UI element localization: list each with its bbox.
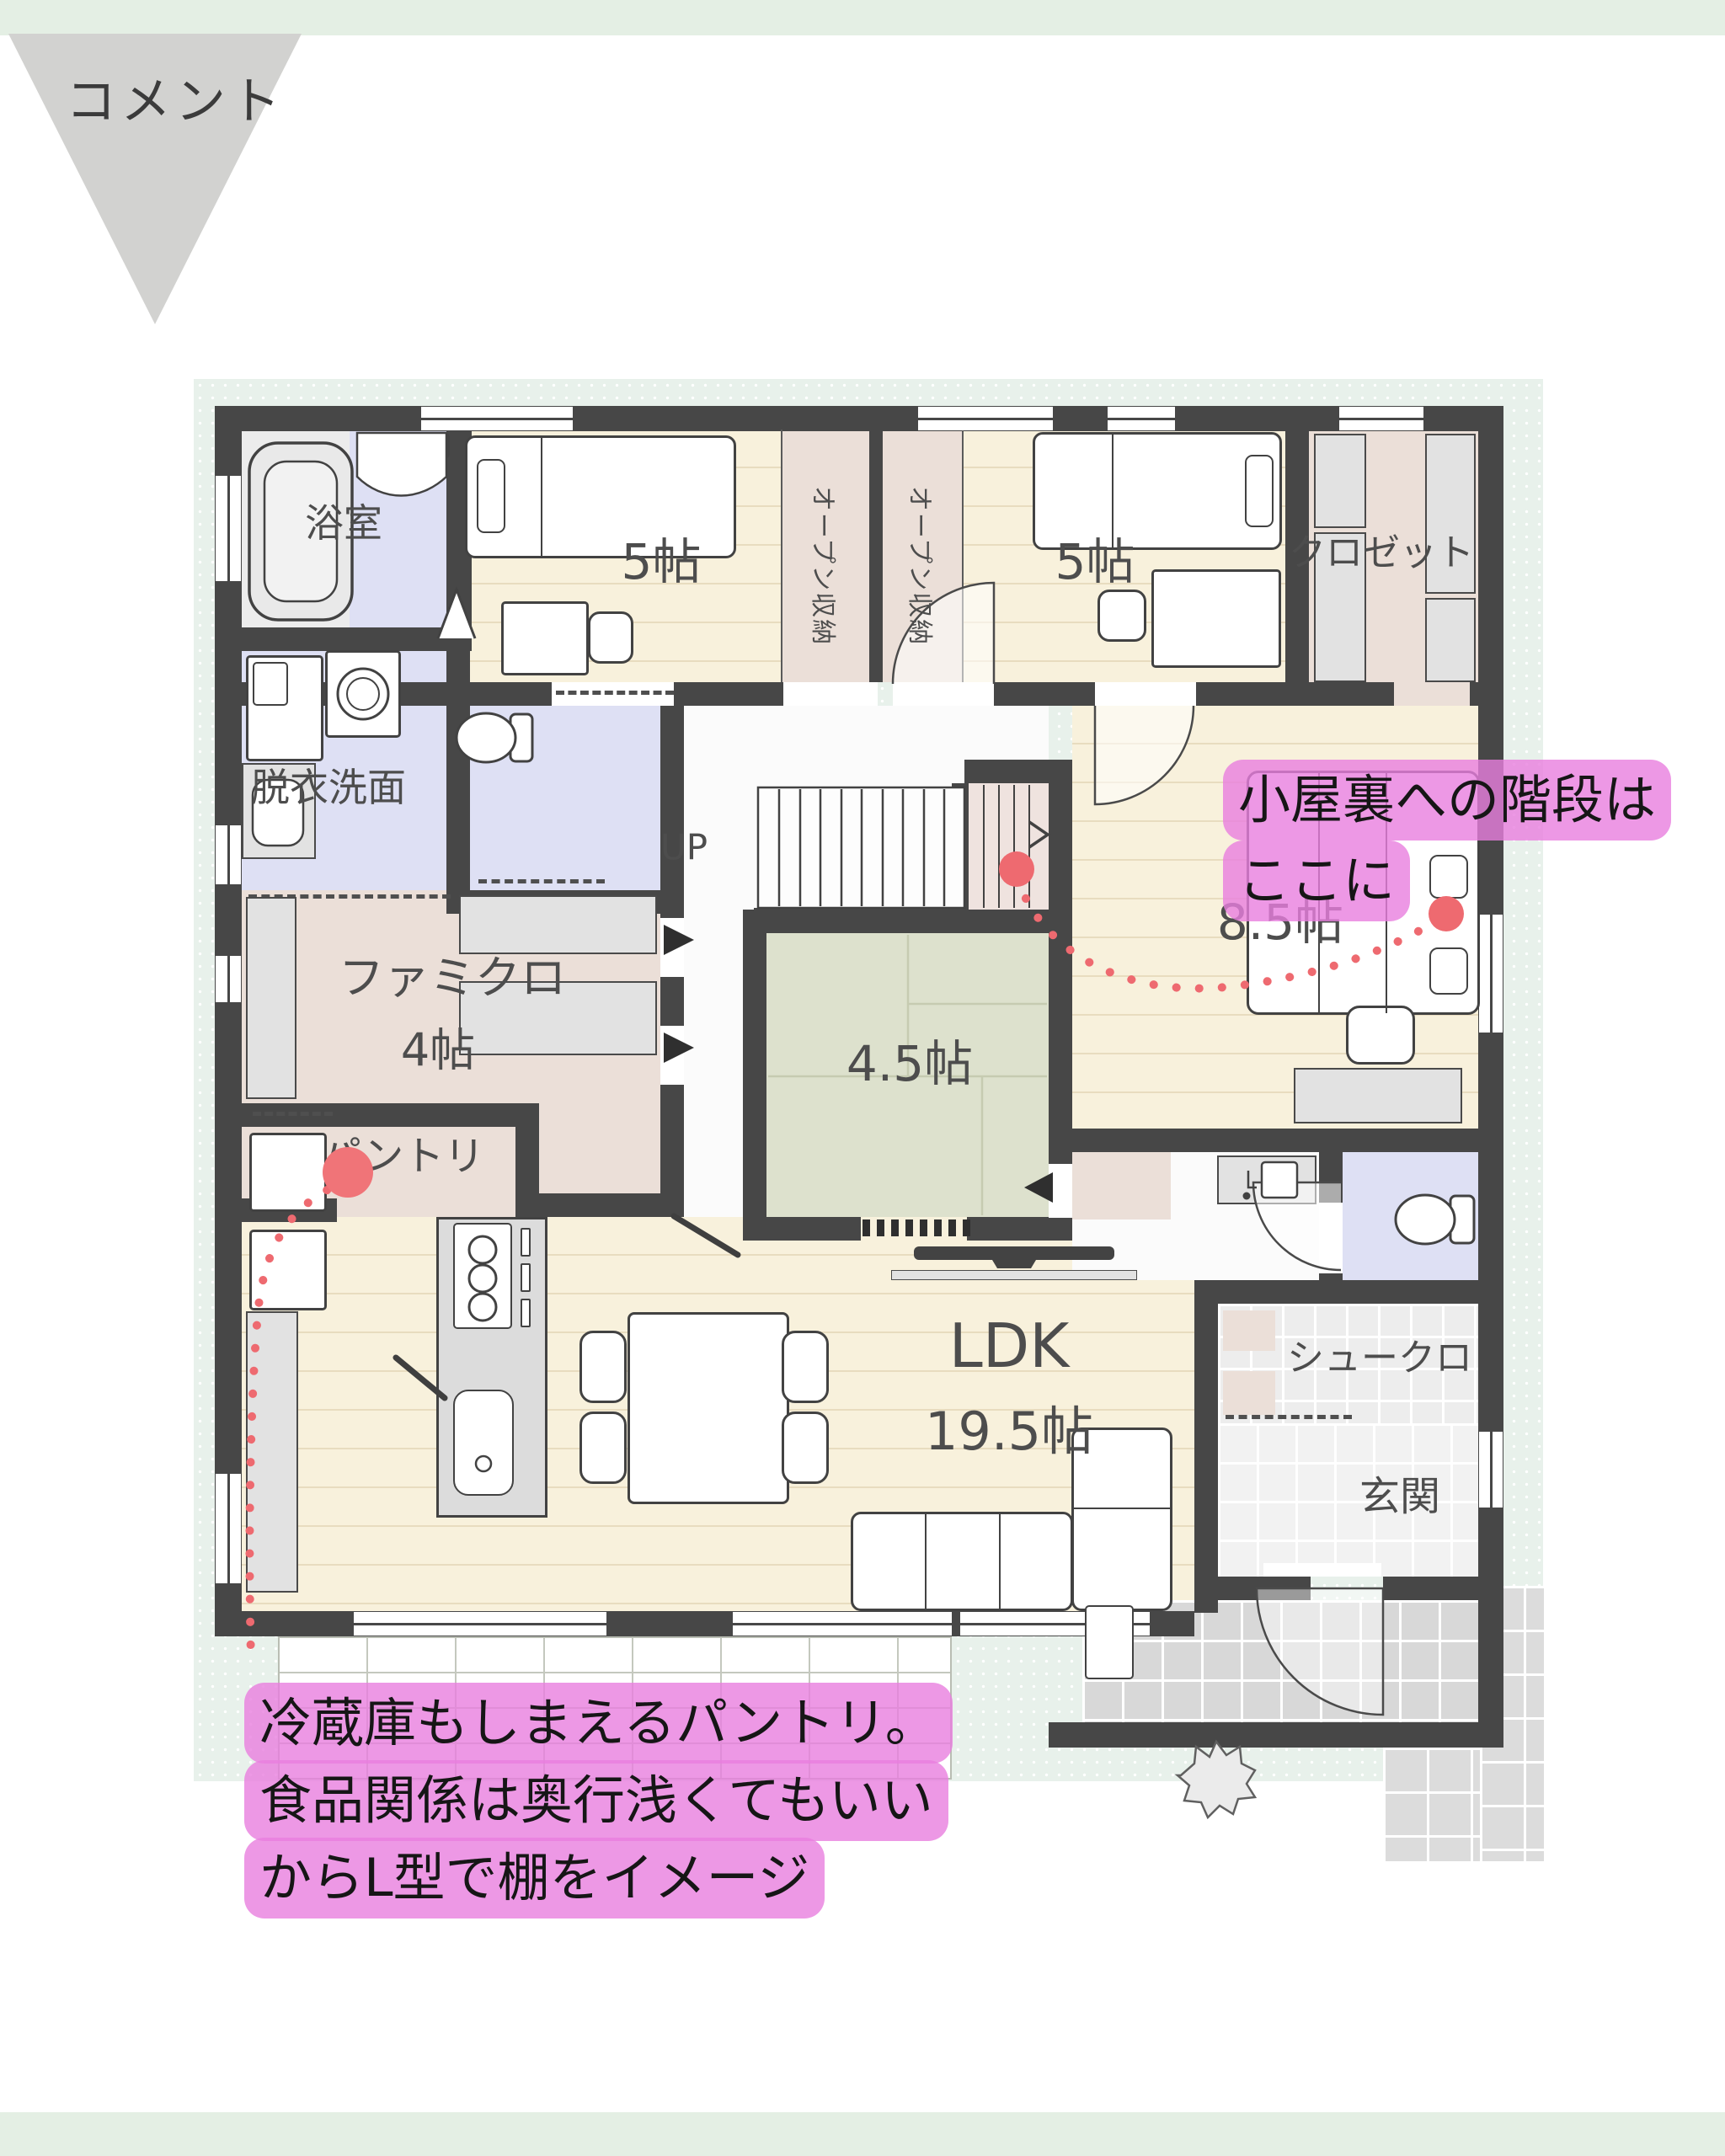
bath-shelf-icon bbox=[406, 433, 450, 458]
closet-shelf-icon bbox=[1425, 598, 1476, 682]
threshold-dashed bbox=[253, 1112, 333, 1116]
annotation-attic-line2: ここに bbox=[1223, 841, 1410, 921]
window bbox=[421, 407, 573, 430]
room-size-ldk: 19.5帖 bbox=[925, 1389, 1093, 1465]
annotation-pantry-line1: 冷蔵庫もしまえるパントリ。 bbox=[244, 1683, 953, 1764]
sofa-icon bbox=[851, 1512, 1073, 1611]
window bbox=[733, 1612, 952, 1636]
laundry-shelf-box-icon bbox=[253, 662, 288, 706]
chair-icon bbox=[579, 1331, 627, 1403]
storage-boundary-line bbox=[962, 430, 964, 682]
wall bbox=[1470, 682, 1480, 706]
planter-icon bbox=[1085, 1605, 1134, 1679]
pillow-icon bbox=[477, 459, 505, 533]
sofa-cushion-line bbox=[999, 1513, 1001, 1609]
room-label-famiclo: ファミクロ bbox=[339, 941, 566, 1007]
room-entrance-floor bbox=[1218, 1423, 1480, 1577]
chair-icon bbox=[782, 1331, 829, 1403]
room-label-shoecloset: シュークロ bbox=[1287, 1327, 1472, 1381]
fridge-icon bbox=[249, 1230, 327, 1310]
closet-shelf-icon bbox=[1314, 434, 1366, 528]
wall bbox=[515, 1193, 660, 1217]
room-label-bedroom1: 5帖 bbox=[622, 522, 702, 593]
wall bbox=[1194, 1280, 1480, 1304]
annotation-pantry-line2: 食品関係は奥行浅くてもいい bbox=[244, 1760, 948, 1841]
washer-icon bbox=[325, 650, 401, 738]
window bbox=[216, 476, 241, 581]
wall bbox=[1049, 1722, 1503, 1748]
desk-icon bbox=[1151, 569, 1281, 668]
door-gap bbox=[893, 682, 994, 706]
kitchen-sink-icon bbox=[453, 1390, 514, 1496]
room-toilet2-floor bbox=[1343, 1152, 1480, 1280]
storage-boundary-line bbox=[781, 430, 782, 682]
window bbox=[216, 1474, 241, 1583]
famiclo-shelf-icon bbox=[246, 897, 296, 1099]
wall bbox=[1049, 783, 1072, 1219]
wall bbox=[215, 406, 242, 1636]
dining-table-icon bbox=[628, 1312, 789, 1504]
threshold-dashed bbox=[1226, 1415, 1352, 1419]
window bbox=[1479, 1432, 1503, 1508]
window bbox=[1479, 915, 1503, 1033]
chair-icon bbox=[1346, 1006, 1415, 1065]
wall bbox=[240, 627, 446, 651]
room-label-ldk: LDK bbox=[949, 1310, 1070, 1381]
approach-tiles2 bbox=[1383, 1748, 1480, 1861]
window bbox=[354, 1612, 606, 1636]
shoe-shelf-icon bbox=[1223, 1371, 1275, 1415]
door-gap bbox=[660, 1026, 684, 1085]
chair-icon bbox=[579, 1412, 627, 1484]
wall bbox=[215, 406, 1503, 431]
window bbox=[918, 407, 1053, 430]
stove-slat-icon bbox=[521, 1228, 531, 1257]
wall bbox=[952, 783, 969, 908]
chair-icon bbox=[588, 611, 633, 664]
room-label-open-storage1: オープン収納 bbox=[807, 486, 844, 646]
bed-fold-line bbox=[541, 437, 542, 557]
pillow-icon bbox=[1429, 855, 1468, 899]
room-label-washroom: 脱衣洗面 bbox=[251, 757, 406, 813]
room-label-bath: 浴室 bbox=[305, 493, 382, 548]
room-toilet1-floor bbox=[470, 706, 660, 890]
wall bbox=[1383, 1577, 1480, 1600]
hall-closet-floor bbox=[1072, 1152, 1171, 1219]
wall bbox=[743, 910, 1049, 933]
door-gap bbox=[660, 918, 684, 977]
door-gap bbox=[1095, 682, 1196, 706]
room-label-open-storage2: オープン収納 bbox=[904, 486, 941, 646]
stove-slat-icon bbox=[521, 1263, 531, 1292]
window bbox=[216, 825, 241, 884]
wall bbox=[1194, 1304, 1218, 1613]
door-gap bbox=[1319, 1203, 1343, 1273]
bottom-banner bbox=[0, 2112, 1725, 2156]
wall bbox=[977, 682, 1095, 706]
tv-icon bbox=[914, 1246, 1114, 1260]
fridge-icon bbox=[249, 1133, 327, 1212]
threshold-dashed bbox=[556, 691, 674, 695]
wall bbox=[743, 1217, 861, 1241]
room-pantry-nook-floor bbox=[539, 1103, 660, 1193]
pillow-icon bbox=[1245, 455, 1274, 527]
room-label-bedroom2: 5帖 bbox=[1055, 522, 1135, 593]
ldk-counter-icon bbox=[246, 1311, 298, 1593]
wall bbox=[743, 933, 766, 1219]
pillow-icon bbox=[1429, 947, 1468, 995]
shoe-shelf-icon bbox=[1223, 1310, 1275, 1351]
hall-corridor-floor bbox=[684, 910, 743, 1217]
threshold-dashed bbox=[478, 879, 605, 883]
desk-icon bbox=[1294, 1068, 1462, 1123]
washbasin-counter-icon bbox=[1217, 1155, 1316, 1204]
desk-icon bbox=[501, 601, 589, 675]
wall bbox=[1196, 682, 1394, 706]
sofa-cushion-line bbox=[1073, 1508, 1171, 1509]
stairs-up-label: UP bbox=[660, 827, 708, 868]
room-size-famiclo: 4帖 bbox=[401, 1013, 475, 1080]
door-gap bbox=[783, 682, 878, 706]
room-label-entrance: 玄関 bbox=[1359, 1463, 1440, 1522]
window bbox=[1339, 407, 1423, 430]
wall bbox=[869, 430, 883, 682]
comment-flag-label: コメント bbox=[66, 61, 285, 134]
wall bbox=[967, 1217, 1072, 1241]
window bbox=[1108, 407, 1175, 430]
attic-stair-floor bbox=[969, 783, 1049, 910]
room-label-pantry: パントリ bbox=[321, 1123, 484, 1182]
tv-board-icon bbox=[891, 1270, 1137, 1280]
chair-icon bbox=[1097, 590, 1146, 642]
wall bbox=[1194, 1577, 1311, 1600]
sofa-cushion-line bbox=[925, 1513, 927, 1609]
floorplan-page: コメント bbox=[0, 0, 1725, 2156]
wall bbox=[964, 760, 1072, 783]
wall bbox=[1072, 1129, 1480, 1152]
room-label-closet: クロゼット bbox=[1289, 522, 1474, 576]
window bbox=[216, 956, 241, 1002]
stove-slat-icon bbox=[521, 1299, 531, 1327]
entrance-step bbox=[1263, 1563, 1381, 1577]
stove-icon bbox=[453, 1223, 512, 1329]
annotation-attic-line1: 小屋裏への階段は bbox=[1223, 760, 1671, 841]
chair-icon bbox=[782, 1412, 829, 1484]
wall bbox=[660, 1103, 684, 1217]
door-gap bbox=[1049, 1164, 1072, 1218]
wall bbox=[1478, 406, 1503, 1748]
room-label-tatami: 4.5帖 bbox=[846, 1024, 973, 1095]
top-banner bbox=[0, 0, 1725, 35]
door-gap bbox=[1394, 682, 1470, 706]
annotation-pantry-line3: からL型で棚をイメージ bbox=[244, 1838, 825, 1919]
